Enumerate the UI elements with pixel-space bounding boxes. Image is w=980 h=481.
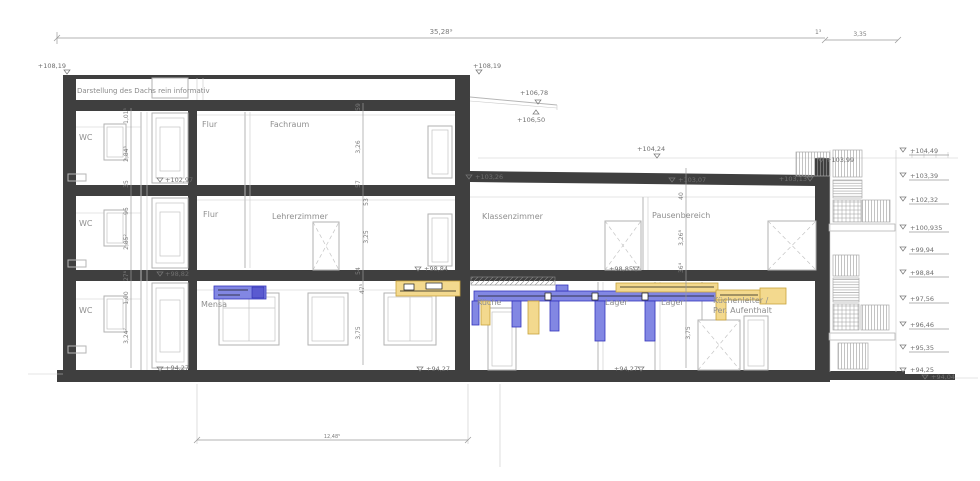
floor1-slab-left bbox=[76, 270, 455, 281]
dim-right-1: 3,26⁸ bbox=[678, 230, 685, 246]
window bbox=[428, 214, 452, 266]
room-kueche: Küche bbox=[477, 298, 501, 307]
roof-slab-left bbox=[76, 100, 455, 111]
elev-parapet-right: +108,19 bbox=[473, 62, 501, 70]
dim-mid-4: 3,25 bbox=[363, 230, 370, 244]
dim-left-4: 2,85² bbox=[123, 234, 130, 250]
dim-right-3: 3,75 bbox=[685, 326, 692, 340]
dim-mid-3: 53 bbox=[363, 198, 370, 206]
elev-right-6: +97,56 bbox=[910, 295, 934, 303]
dim-mid-0: 59 bbox=[355, 103, 362, 111]
canopy bbox=[470, 97, 557, 110]
elev-right-5: +98,84 bbox=[910, 269, 934, 277]
room-fachraum: Fachraum bbox=[270, 120, 310, 129]
elev-slab2-mid: +103,07 bbox=[678, 176, 706, 184]
dim-left-0: 1,01⁵ bbox=[123, 108, 130, 124]
central-column bbox=[455, 75, 470, 382]
elev-right-3: +100,935 bbox=[910, 224, 942, 232]
dim-left-2: 35 bbox=[123, 180, 130, 188]
dim-top-right: 3,35 bbox=[853, 31, 867, 38]
hatched-ceiling bbox=[471, 277, 555, 285]
room-flur-top: Flur bbox=[202, 120, 218, 129]
elev-terrain: +94,04 bbox=[931, 373, 955, 381]
dim-mid-5: 54 bbox=[355, 267, 362, 275]
elev-slab2-right: +103,13 bbox=[779, 175, 807, 183]
dim-left-1: 2,84⁵ bbox=[123, 146, 130, 162]
dim-right-0: 40 bbox=[678, 192, 685, 200]
elev-canopy-bottom: +106,50 bbox=[517, 116, 545, 124]
elev-roof2: +104,24 bbox=[637, 145, 665, 153]
roof-slab-right bbox=[470, 171, 815, 186]
room-wc-ground: WC bbox=[79, 306, 93, 315]
room-lager-1: Lager bbox=[605, 298, 628, 307]
dim-top-small: 1³ bbox=[815, 29, 822, 36]
room-kuechenleiter-1: Küchenleiter / bbox=[713, 296, 769, 305]
elev-canopy-top: +106,78 bbox=[520, 89, 548, 97]
dim-bottom: 12,48⁵ bbox=[324, 434, 340, 440]
elev-floor1-left: +98,84 bbox=[424, 265, 448, 273]
roof-note: Darstellung des Dachs rein informativ bbox=[77, 87, 210, 95]
dim-left-3: 95 bbox=[123, 207, 130, 215]
dim-mid-1: 3,26 bbox=[355, 140, 362, 154]
dim-mid-7: 3,75 bbox=[355, 326, 362, 340]
floor2-slab bbox=[76, 185, 455, 196]
window bbox=[308, 293, 348, 345]
wc-rooms bbox=[68, 124, 126, 353]
dimension-top: 35,28⁹ 1³ 3,35 bbox=[54, 28, 901, 44]
dim-left-6: 1,00 bbox=[123, 291, 130, 305]
room-flur-mid: Flur bbox=[203, 210, 219, 219]
dim-right-2: 36⁴ bbox=[678, 262, 685, 273]
elev-right-4: +99,94 bbox=[910, 246, 934, 254]
elev-stair-top: +103,99 bbox=[826, 156, 854, 164]
parapet-band bbox=[63, 75, 470, 79]
section-drawing-sheet: 35,28⁹ 1³ 3,35 bbox=[0, 0, 980, 481]
shaft-wall bbox=[188, 111, 197, 370]
room-wc-top: WC bbox=[79, 133, 93, 142]
elev-floor1-right: +98,85 bbox=[609, 265, 633, 273]
room-wc-mid: WC bbox=[79, 219, 93, 228]
window bbox=[428, 126, 452, 178]
elev-stair-l2: +98,82 bbox=[165, 270, 189, 278]
elev-ground-right: +94,27 bbox=[614, 365, 638, 373]
room-lager-2: Lager bbox=[661, 298, 684, 307]
elev-parapet-left: +108,19 bbox=[38, 62, 66, 70]
ground-slab-ext bbox=[820, 371, 905, 380]
building-section-svg: 35,28⁹ 1³ 3,35 bbox=[0, 0, 980, 481]
left-outer-wall bbox=[63, 75, 76, 382]
elev-slab2-left: +103,26 bbox=[475, 173, 503, 181]
window bbox=[744, 316, 768, 370]
duct-yellow-main bbox=[616, 283, 718, 292]
room-lehrerzimmer: Lehrerzimmer bbox=[272, 212, 329, 221]
dim-top-main: 35,28⁹ bbox=[430, 28, 453, 36]
elev-stair-l1: +102,97 bbox=[165, 176, 193, 184]
dim-mid-6: 47⁵ bbox=[359, 283, 366, 294]
room-klassenzimmer: Klassenzimmer bbox=[482, 212, 544, 221]
elev-stair-ground: +94,27 bbox=[165, 364, 189, 372]
elev-ground-left: +94,27 bbox=[426, 365, 450, 373]
dim-left-7: 3,24⁷ bbox=[123, 328, 130, 344]
dim-mid-2: 57 bbox=[355, 180, 362, 188]
elev-right-2: +102,32 bbox=[910, 196, 938, 204]
elev-right-1: +103,39 bbox=[910, 172, 938, 180]
elev-right-7: +96,46 bbox=[910, 321, 934, 329]
stair-shaft bbox=[152, 78, 188, 368]
windows-doors bbox=[219, 126, 816, 370]
dimension-bottom: 12,48⁵ bbox=[194, 384, 471, 444]
room-pausenbereich: Pausenbereich bbox=[652, 211, 710, 220]
elev-right-0: +104,49 bbox=[910, 147, 938, 155]
elev-right-8: +95,35 bbox=[910, 344, 934, 352]
room-mensa: Mensa bbox=[201, 300, 227, 309]
room-kuechenleiter-2: Per. Aufenthalt bbox=[713, 306, 772, 315]
dim-left-5: 27⁸ bbox=[123, 270, 130, 281]
right-outer-wall bbox=[815, 158, 830, 382]
